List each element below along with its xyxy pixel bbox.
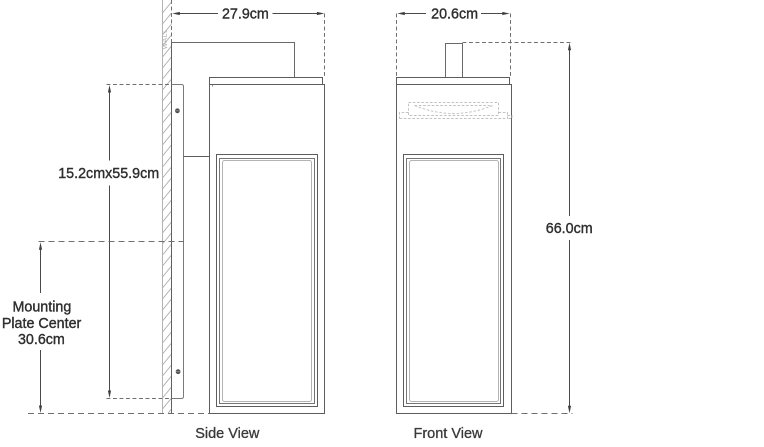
svg-text:27.9cm: 27.9cm bbox=[222, 6, 269, 22]
svg-text:Front View: Front View bbox=[413, 426, 483, 442]
svg-text:WALL: WALL bbox=[162, 29, 169, 50]
svg-text:15.2cmx55.9cm: 15.2cmx55.9cm bbox=[58, 166, 159, 182]
svg-text:Side View: Side View bbox=[195, 426, 260, 442]
svg-text:Mounting: Mounting bbox=[12, 300, 71, 316]
svg-text:Plate Center: Plate Center bbox=[2, 316, 82, 332]
svg-text:66.0cm: 66.0cm bbox=[546, 221, 593, 237]
svg-text:20.6cm: 20.6cm bbox=[431, 6, 478, 22]
svg-text:30.6cm: 30.6cm bbox=[18, 332, 65, 348]
